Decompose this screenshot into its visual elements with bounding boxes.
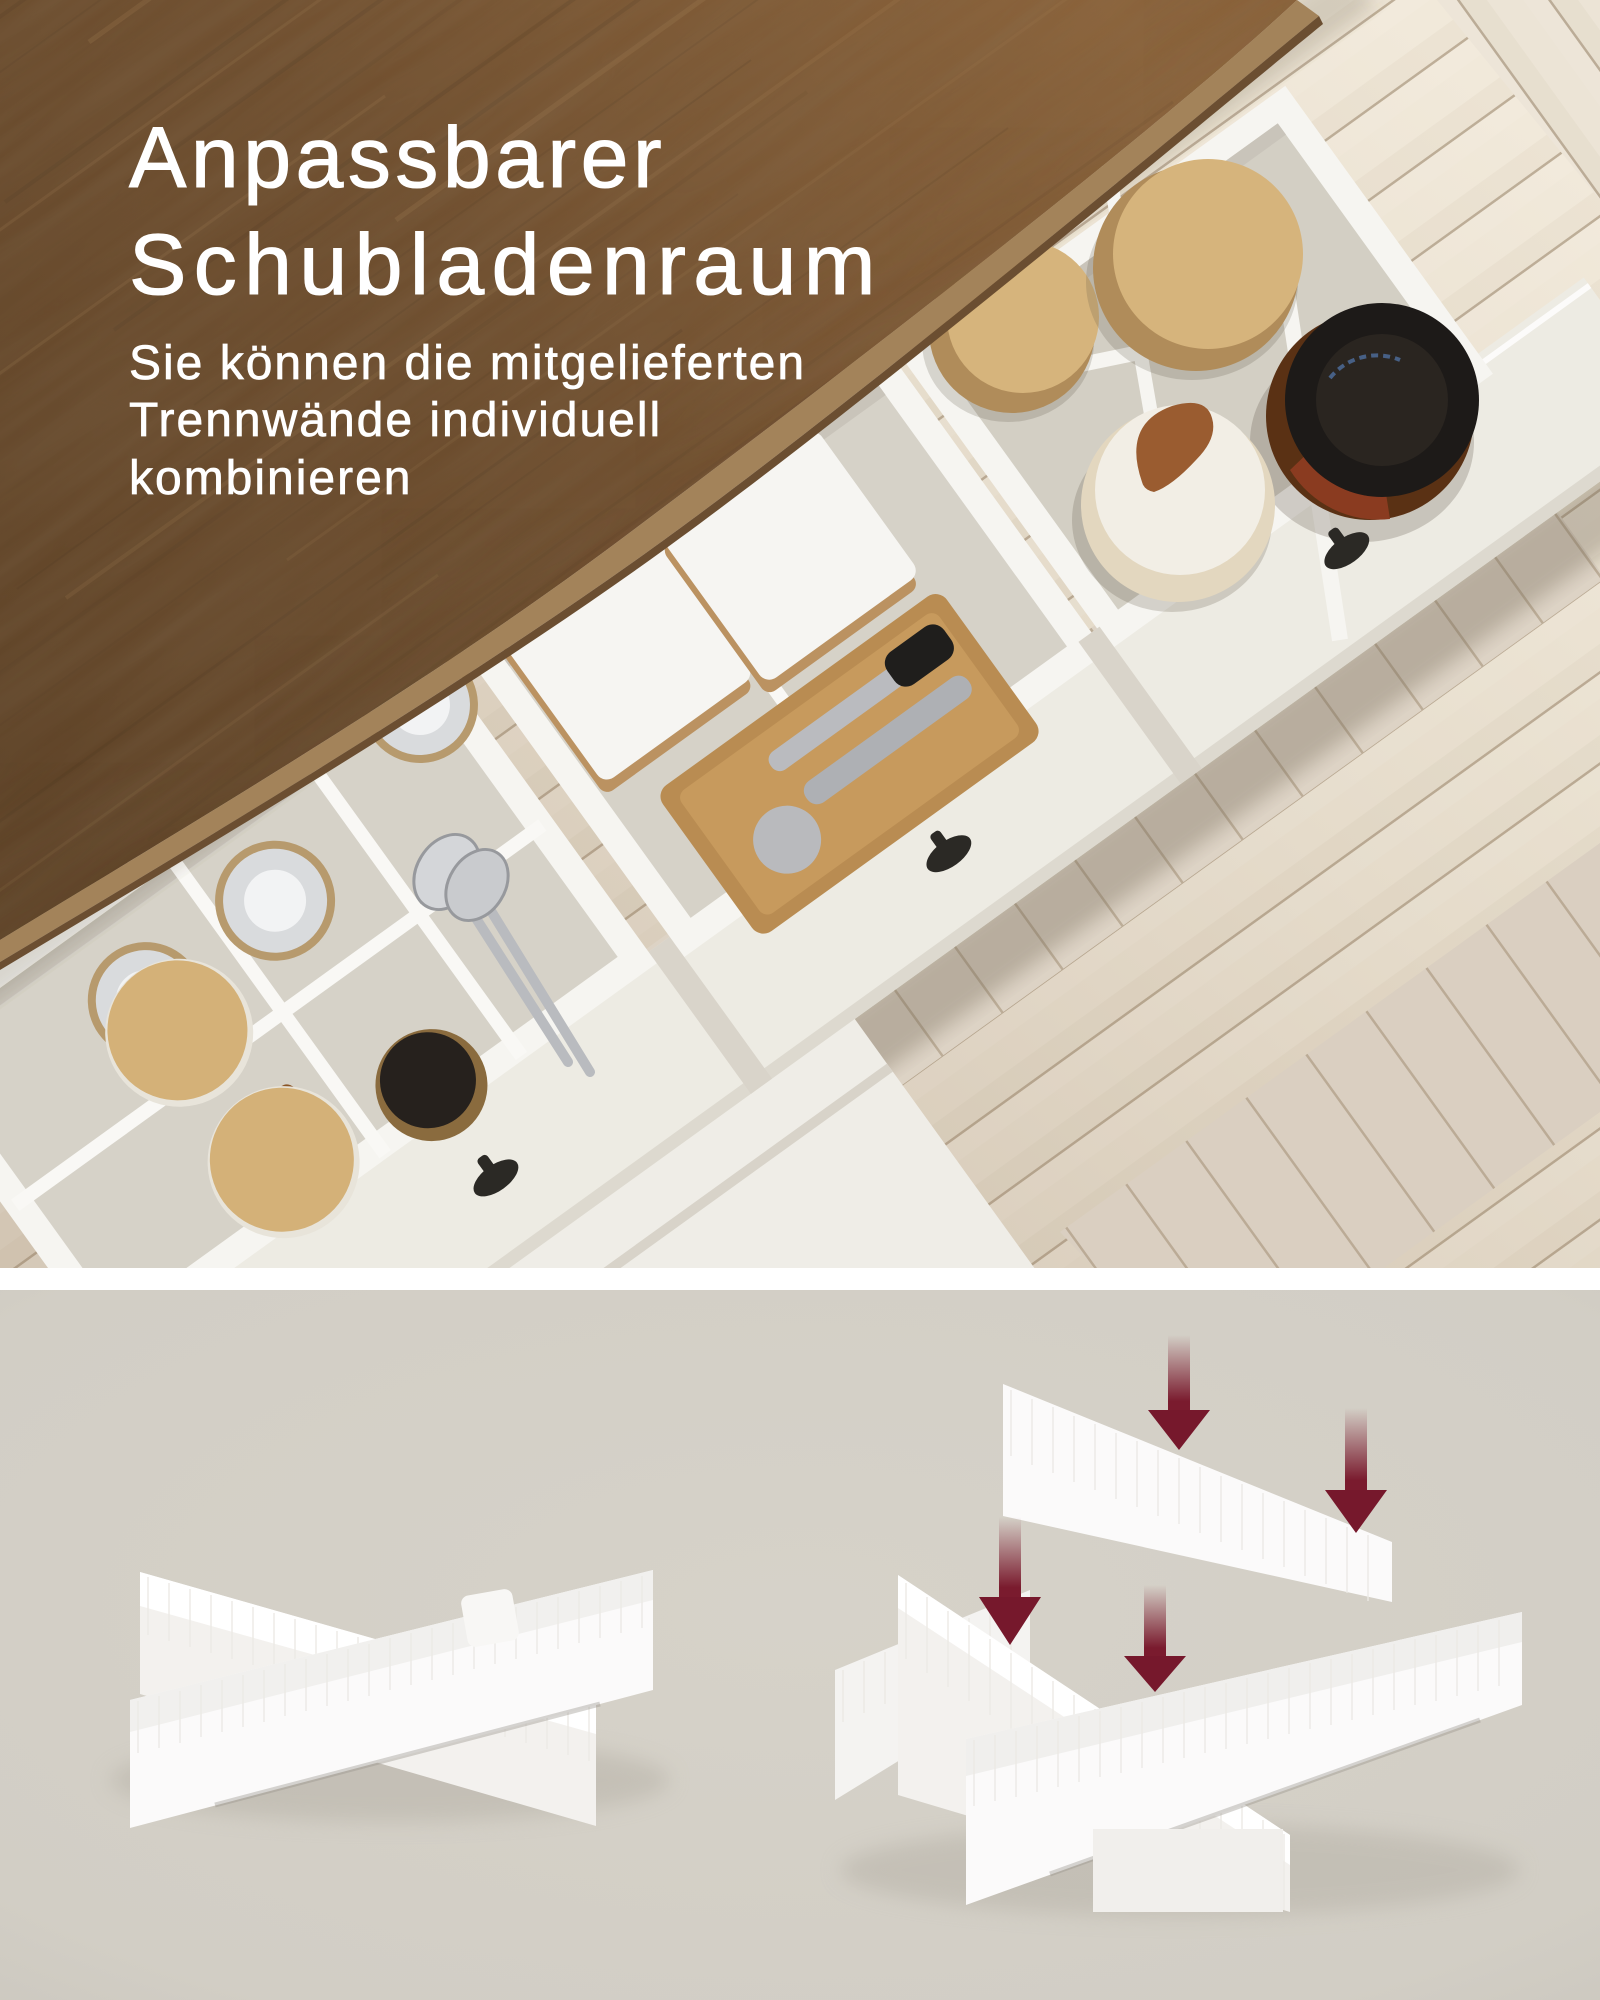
svg-text:kombinieren: kombinieren <box>129 452 412 505</box>
svg-text:Schubladenraum: Schubladenraum <box>129 217 883 313</box>
svg-text:Trennwände individuell: Trennwände individuell <box>129 394 662 447</box>
svg-text:Sie können die mitgelieferten: Sie können die mitgelieferten <box>129 337 806 390</box>
svg-text:Anpassbarer: Anpassbarer <box>129 110 666 206</box>
